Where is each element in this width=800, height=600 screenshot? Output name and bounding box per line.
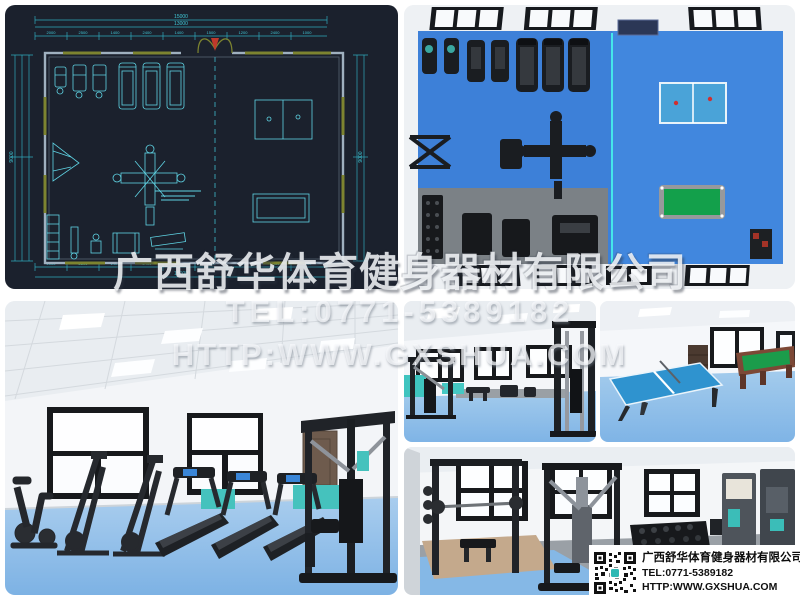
topview-wall-mat	[618, 20, 658, 35]
cad-dimension-lines	[11, 16, 368, 277]
topview-pool-table	[659, 185, 725, 219]
svg-text:15000: 15000	[174, 14, 188, 20]
cad-rack-glyph	[53, 143, 79, 181]
cad-floorplan-drawing: 15000 13000 15000 9000 9000 20002500 140…	[5, 5, 398, 289]
svg-text:2000: 2000	[47, 30, 57, 35]
cad-multigym-glyph	[113, 145, 185, 225]
cad-floorplan-image: 15000 13000 15000 9000 9000 20002500 140…	[5, 5, 398, 289]
cad-window-segments	[45, 53, 343, 263]
cable-windows	[416, 345, 572, 382]
svg-text:1400: 1400	[111, 30, 121, 35]
svg-text:9000: 9000	[9, 151, 15, 162]
svg-text:2400: 2400	[271, 30, 281, 35]
cardio-room-render	[5, 301, 398, 595]
tabletennis-room-render	[600, 301, 795, 442]
svg-text:2400: 2400	[143, 30, 153, 35]
cardio-window-right	[187, 413, 263, 495]
infobox-telephone: TEL:0771-5389182	[642, 568, 800, 579]
svg-text:13000: 13000	[174, 21, 188, 27]
cad-bike-glyphs	[55, 65, 106, 98]
gym-topview-render	[404, 5, 795, 289]
promo-collage: 15000 13000 15000 9000 9000 20002500 140…	[0, 0, 800, 600]
svg-text:1200: 1200	[239, 30, 249, 35]
cad-pooltable-glyph	[253, 194, 309, 222]
svg-text:15000: 15000	[174, 271, 188, 277]
svg-text:9000: 9000	[358, 151, 364, 162]
cad-equipment-glyphs	[47, 63, 312, 259]
cable-room-render	[404, 301, 596, 442]
tabletennis-room-drawing	[600, 301, 795, 442]
infobox-company-name: 广西舒华体育健身器材有限公司	[642, 553, 800, 565]
svg-text:1500: 1500	[207, 30, 217, 35]
cad-room-walls	[45, 38, 343, 263]
svg-text:2500: 2500	[79, 30, 89, 35]
cad-text-annotation	[155, 191, 201, 200]
qr-code	[593, 551, 637, 595]
qr-logo-teal	[611, 569, 619, 577]
cad-tabletennis-glyph	[255, 100, 312, 139]
svg-text:1000: 1000	[303, 30, 313, 35]
cad-bottom-equipment-glyphs	[47, 215, 186, 259]
cable-room-drawing	[404, 301, 596, 442]
cad-treadmill-glyphs	[119, 63, 184, 109]
rack-side-wall	[404, 447, 420, 595]
cardio-room-drawing	[5, 301, 398, 595]
topview-tabletennis-table	[660, 83, 726, 123]
cad-door	[181, 38, 232, 53]
gym-topview-drawing	[404, 5, 795, 289]
contact-info-box: 广西舒华体育健身器材有限公司 TEL:0771-5389182 HTTP:WWW…	[589, 545, 800, 600]
topview-wall-rack	[750, 229, 772, 259]
svg-text:1400: 1400	[175, 30, 185, 35]
infobox-website: HTTP:WWW.GXSHUA.COM	[642, 582, 800, 593]
